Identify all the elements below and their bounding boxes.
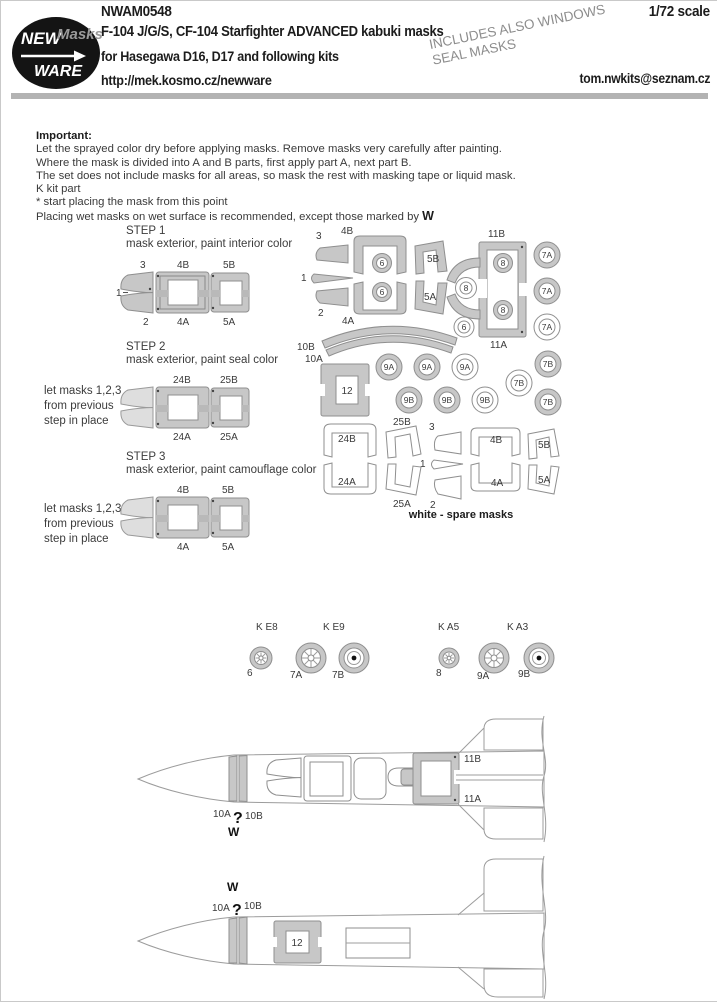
logo-new-text: NEW (21, 29, 61, 49)
product-title: F-104 J/G/S, CF-104 Starfighter ADVANCED… (101, 24, 444, 40)
sheet-circle-9a3: 9A (460, 362, 471, 372)
w-mark: W (422, 209, 434, 223)
sheet-label-24a: 24A (338, 477, 356, 488)
sheet-label-spare4a: 4A (491, 478, 504, 489)
step3-label-5b: 5B (222, 485, 235, 496)
step1-label-5b: 5B (223, 260, 236, 271)
sheet-label-2: 2 (318, 308, 324, 319)
important-line-2: Where the mask is divided into A and B p… (36, 157, 696, 170)
sheet-label-11b: 11B (488, 229, 505, 240)
logo-ware-text: WARE (34, 63, 82, 81)
important-line-1: Let the sprayed color dry before applyin… (36, 143, 696, 156)
sheet-label-12: 12 (341, 386, 353, 397)
kit-part-e9-label: K E9 (323, 622, 345, 633)
step1-label-1: 1 (116, 288, 122, 299)
topview-label-11b: 11B (464, 754, 481, 765)
sheet-circle-7a2: 7A (542, 286, 553, 296)
bottomview-label-10a: 10A (212, 903, 230, 914)
sheet-circle-8a: 8 (501, 258, 506, 268)
topview-label-11a: 11A (464, 794, 481, 805)
kit-part-e8-label: K E8 (256, 622, 278, 633)
wheel-9a-label: 9A (477, 671, 490, 682)
product-code: NWAM0548 (101, 3, 172, 20)
step3-canopy-diagram: 4B 5B 4A 5A (116, 484, 261, 556)
step2-note: let masks 1,2,3from previousstep in plac… (44, 384, 121, 429)
wheel-8-icon (439, 648, 459, 668)
sheet-circle-7b2: 7B (514, 378, 525, 388)
step2-label-24a: 24A (173, 432, 191, 443)
step2-canopy-diagram: 24B 25B 24A 25A (116, 374, 261, 446)
sheet-label-10a: 10A (305, 354, 323, 365)
wheel-9b-label: 9B (518, 669, 531, 680)
sheet-label-5b: 5B (427, 254, 440, 265)
sheet-label-24b: 24B (338, 434, 356, 445)
sheet-label-4a: 4A (342, 316, 355, 327)
newware-logo: NEW Masks WARE (12, 17, 100, 89)
important-block: Important: Let the sprayed color dry bef… (36, 130, 696, 224)
wheel-8-label: 8 (436, 668, 442, 679)
instruction-sheet: NEW Masks WARE NWAM0548 1/72 scale F-104… (0, 0, 717, 1002)
step1-label-3: 3 (140, 260, 146, 271)
sheet-label-11a: 11A (490, 340, 507, 351)
step3-note: let masks 1,2,3from previousstep in plac… (44, 502, 121, 547)
sheet-circle-9b3: 9B (480, 395, 491, 405)
aircraft-bottom-view: 12 W 10A ? 10B (106, 851, 556, 1001)
wheel-7a-label: 7A (290, 670, 303, 681)
sheet-circle-9b2: 9B (442, 395, 453, 405)
step1-label-4b: 4B (177, 260, 190, 271)
topview-w-mark: W (228, 825, 240, 839)
topview-label-10a: 10A (213, 809, 231, 820)
kit-part-a5-label: K A5 (438, 622, 460, 633)
step2-title: STEP 2 (126, 341, 278, 354)
kit-part-a3-label: K A3 (507, 622, 529, 633)
sheet-circle-6b: 6 (380, 287, 385, 297)
step1-heading: STEP 1 mask exterior, paint interior col… (126, 225, 292, 250)
sheet-circle-7a1: 7A (542, 250, 553, 260)
seal-masks-note: INCLUDES ALSO WINDOWS SEAL MASKS (428, 2, 610, 69)
wheel-7b-icon (339, 643, 369, 673)
step3-label-4a: 4A (177, 542, 190, 553)
sheet-circle-6c: 6 (462, 322, 467, 332)
wheel-7b-label: 7B (332, 670, 345, 681)
step2-desc: mask exterior, paint seal color (126, 354, 278, 367)
step2-label-25a: 25A (220, 432, 238, 443)
scale-label: 1/72 scale (649, 3, 710, 20)
sheet-circle-7b1: 7B (543, 359, 554, 369)
step1-desc: mask exterior, paint interior color (126, 238, 292, 251)
sheet-circle-9a1: 9A (384, 362, 395, 372)
spare-masks-caption: white - spare masks (408, 509, 514, 521)
header-divider (11, 93, 708, 99)
sheet-label-spare5b: 5B (538, 440, 551, 451)
sheet-label-10b: 10B (297, 342, 315, 353)
product-subtitle: for Hasegawa D16, D17 and following kits (101, 48, 339, 64)
sheet-label-3: 3 (316, 231, 322, 242)
step1-label-2: 2 (143, 317, 149, 328)
mask-sheet-diagram: 3 1 2 4B 4A 6 6 5B 5A 8 8 8 11B 11A 7A (291, 226, 591, 526)
topview-label-10b: 10B (245, 811, 263, 822)
important-line-5: * start placing the mask from this point (36, 196, 696, 209)
step3-title: STEP 3 (126, 451, 316, 464)
bottomview-label-12: 12 (291, 938, 303, 949)
sheet-circle-9b1: 9B (404, 395, 415, 405)
sheet-label-5a: 5A (424, 292, 437, 303)
contact-email: tom.nwkits@seznam.cz (579, 71, 710, 86)
bottomview-label-10b: 10B (244, 901, 262, 912)
website-url: http://mek.kosmo.cz/newware (101, 72, 272, 88)
wheel-masks-diagram: K E8 6 K E9 7A 7B K A5 8 K A3 (231, 616, 561, 691)
step3-label-5a: 5A (222, 542, 235, 553)
sheet-label-4b: 4B (341, 226, 354, 237)
sheet-label-spare3: 3 (429, 422, 435, 433)
bottomview-question-mark: ? (232, 902, 242, 919)
aircraft-top-view: 11B 11A 10A ? 10B W (106, 696, 556, 851)
logo-arrow-icon (18, 49, 92, 63)
sheet-circle-6a: 6 (380, 258, 385, 268)
step3-label-4b: 4B (177, 485, 190, 496)
sheet-circle-8b: 8 (464, 283, 469, 293)
sheet-circle-8c: 8 (501, 305, 506, 315)
wheel-9a-icon (479, 643, 509, 673)
sheet-circle-9a2: 9A (422, 362, 433, 372)
important-line-6: Placing wet masks on wet surface is reco… (36, 210, 696, 224)
step1-canopy-diagram: 3 4B 5B 1 2 4A 5A (116, 259, 261, 331)
step1-label-4a: 4A (177, 317, 190, 328)
wheel-6-label: 6 (247, 668, 253, 679)
step2-label-24b: 24B (173, 375, 191, 386)
step2-label-25b: 25B (220, 375, 238, 386)
sheet-label-1: 1 (301, 273, 307, 284)
sheet-label-spare5a: 5A (538, 475, 551, 486)
sheet-label-spare4b: 4B (490, 435, 503, 446)
step3-heading: STEP 3 mask exterior, paint camouflage c… (126, 451, 316, 476)
step1-label-5a: 5A (223, 317, 236, 328)
sheet-label-spare1: 1 (420, 459, 426, 470)
sheet-circle-7a3: 7A (542, 322, 553, 332)
step2-heading: STEP 2 mask exterior, paint seal color (126, 341, 278, 366)
wheel-6-icon (250, 647, 272, 669)
step1-title: STEP 1 (126, 225, 292, 238)
logo-masks-text: Masks (57, 26, 103, 43)
important-line-4: K kit part (36, 183, 696, 196)
important-line-3: The set does not include masks for all a… (36, 170, 696, 183)
step3-desc: mask exterior, paint camouflage color (126, 464, 316, 477)
wheel-7a-icon (296, 643, 326, 673)
sheet-label-25b: 25B (393, 417, 411, 428)
important-heading: Important: (36, 130, 92, 142)
bottomview-w-mark: W (227, 880, 239, 894)
sheet-circle-7b3: 7B (543, 397, 554, 407)
